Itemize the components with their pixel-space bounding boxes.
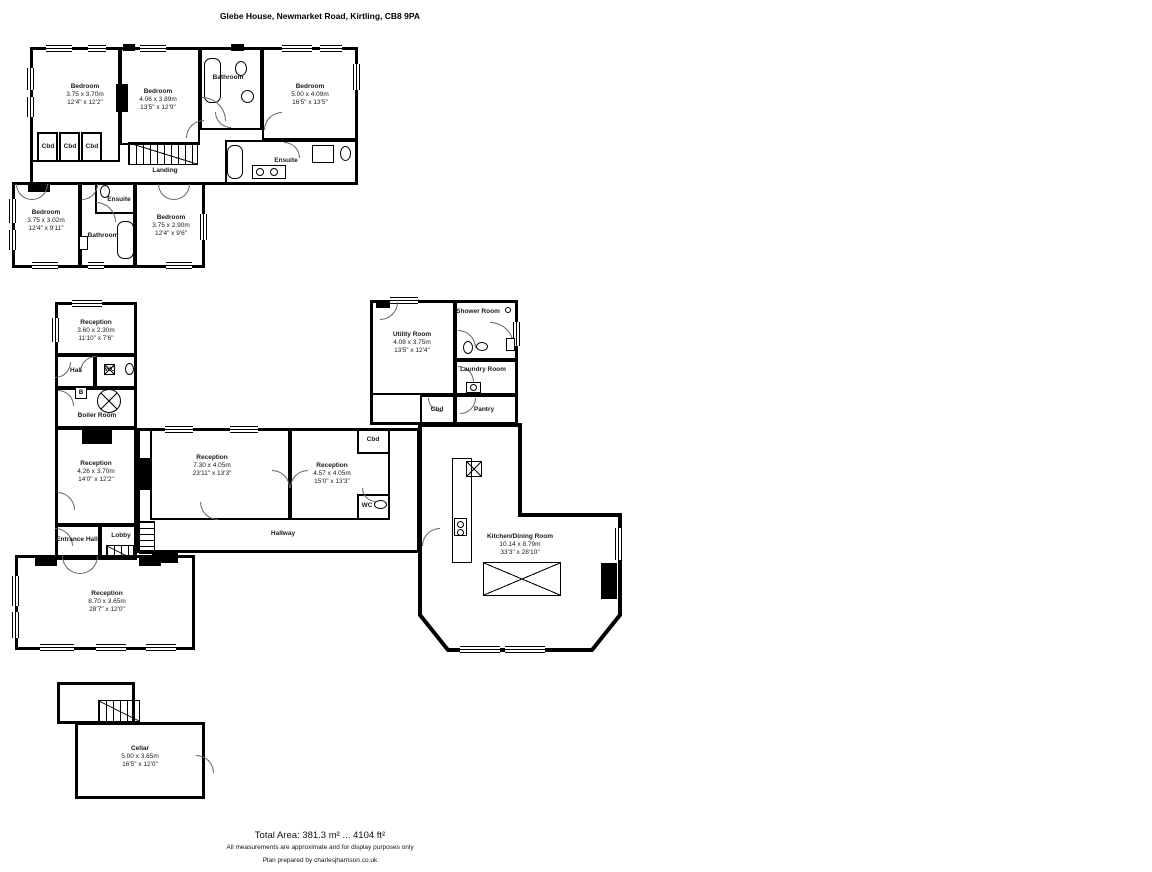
window [282,45,312,52]
plan-footer: Total Area: 381.3 m² ... 4104 ft² All me… [0,830,640,864]
room-name: Bedroom [291,83,329,91]
window [52,318,59,342]
room-label-reception-front: Reception 8.70 x 3.65m 28'7" x 12'0" [88,590,126,614]
prepared-by-text: Plan prepared by charlesjharrison.co.uk [0,857,640,864]
wall-segment [123,44,135,51]
toilet-icon [125,363,134,375]
room-dim-imperial: 23'11" x 13'3" [193,470,232,478]
window [88,262,104,269]
sink-icon [476,342,488,351]
wall-segment [152,551,178,563]
room-label-reception-small: Reception 3.60 x 2.30m 11'10" x 7'6" [77,319,115,343]
room-label-bedroom-2: Bedroom 4.06 x 3.89m 13'5" x 12'9" [139,88,177,112]
room-label-bedroom-3: Bedroom 5.00 x 4.09m 16'5" x 13'5" [291,83,329,107]
window [27,68,34,90]
room-name: Reception [77,460,115,468]
room-label-shower: Shower Room [456,308,500,316]
room-dim-imperial: 15'0" x 13'3" [313,478,351,486]
window [353,64,360,90]
window [27,97,34,117]
room-label-wc-1: WC [105,366,116,374]
room-dim-imperial: 16'5" x 13'5" [291,99,329,107]
boiler-b-box: B [75,387,87,399]
hob-icon [466,461,482,477]
plan-title: Glebe House, Newmarket Road, Kirtling, C… [0,11,640,21]
chimney-breast [137,458,152,490]
room-dim-metric: 4.57 x 4.05m [313,470,351,478]
room-dim-metric: 8.70 x 3.65m [88,598,126,606]
room-dim-metric: 4.06 x 3.89m [139,96,177,104]
room-dim-metric: 7.30 x 4.05m [193,462,232,470]
sink-icon [241,90,254,103]
room-dim-metric: 10.14 x 8.79m [487,541,553,549]
room-dim-imperial: 13'5" x 12'4" [393,347,431,355]
washer-drum-icon [470,384,477,391]
room-label-lobby: Lobby [111,532,131,540]
sink-icon [79,236,88,250]
window [615,528,622,560]
room-name: Reception [313,462,351,470]
wall-segment [231,44,244,51]
stairs-landing [128,142,198,165]
sink-bowl-icon [457,521,464,528]
shower-icon [312,145,334,163]
room-dim-imperial: 12'4" x 9'11" [27,225,65,233]
room-name: Bedroom [27,209,65,217]
room-dim-metric: 3.75 x 3.02m [27,217,65,225]
room-label-reception-mid: Reception 7.30 x 4.05m 23'11" x 13'3" [193,454,232,478]
room-label-pantry: Pantry [474,406,494,414]
room-label-landing: Landing [152,167,177,175]
label-cbd-1: Cbd [42,143,55,151]
room-label-bedroom-5: Bedroom 3.75 x 2.90m 12'4" x 9'6" [152,214,190,238]
room-label-hallway: Hallway [271,530,295,538]
room-label-boiler: Boiler Room [78,412,117,420]
room-label-ensuite-lower: Ensuite [107,196,130,204]
room-dim-imperial: 28'7" x 12'0" [88,606,126,614]
room-name: Utility Room [393,331,431,339]
disclaimer-text: All measurements are approximate and for… [0,844,640,851]
room-label-entrance-hall: Entrance Hall [56,536,98,544]
window [46,45,72,52]
floorplan-page: Glebe House, Newmarket Road, Kirtling, C… [0,0,1152,872]
room-name: Cellar [121,745,159,753]
sink-icon [506,338,515,351]
window [9,230,16,250]
room-label-reception-right: Reception 4.57 x 4.05m 15'0" x 13'3" [313,462,351,486]
window [166,262,192,269]
room-label-ensuite-top: Ensuite [274,157,297,165]
light-icon [505,307,511,313]
room-dim-imperial: 14'0" x 12'2" [77,476,115,484]
window [9,199,16,223]
sink-bowl-icon [457,529,464,536]
room-dim-metric: 4.26 x 3.70m [77,468,115,476]
bathtub-icon [117,221,134,259]
room-label-cellar: Cellar 5.00 x 3.65m 16'5" x 12'0" [121,745,159,769]
window [230,426,258,433]
room-label-laundry: Laundry Room [460,366,506,374]
room-dim-metric: 5.00 x 4.09m [291,91,329,99]
chimney-breast [116,84,128,112]
window [40,644,74,651]
stairs-to-first-floor [139,521,155,554]
room-label-bedroom-4: Bedroom 3.75 x 3.02m 12'4" x 9'11" [27,209,65,233]
stairs-cellar [98,700,140,722]
window [12,612,19,638]
room-dim-imperial: 12'4" x 9'6" [152,230,190,238]
room-label-bedroom-1: Bedroom 3.75 x 3.70m 12'4" x 12'2" [66,83,104,107]
window [505,646,545,653]
room-name: Reception [77,319,115,327]
chimney-breast [82,429,112,444]
room-dim-metric: 3.60 x 2.30m [77,327,115,335]
chimney-breast [35,556,57,566]
window [88,45,106,52]
boiler-icon [97,389,121,413]
room-dim-imperial: 13'5" x 12'9" [139,104,177,112]
room-dim-metric: 3.75 x 2.90m [152,222,190,230]
window [460,646,500,653]
room-label-hall: Hall [70,367,82,375]
room-dim-imperial: 33'3" x 28'10" [487,549,553,557]
room-dim-metric: 5.00 x 3.65m [121,753,159,761]
bathtub-icon [227,145,243,179]
room-label-reception-left: Reception 4.26 x 3.70m 14'0" x 12'2" [77,460,115,484]
window [320,45,342,52]
window [72,300,102,307]
room-dim-metric: 4.08 x 3.75m [393,339,431,347]
window [146,644,176,651]
room-name: Kitchen/Dining Room [487,533,553,541]
label-cbd-2: Cbd [64,143,77,151]
room-dim-metric: 3.75 x 3.70m [66,91,104,99]
window [140,45,166,52]
room-name: Reception [193,454,232,462]
room-name: Bedroom [152,214,190,222]
room-label-kitchen: Kitchen/Dining Room 10.14 x 8.79m 33'3" … [487,533,553,557]
sink-icon [256,168,264,176]
label-cbd-3: Cbd [86,143,99,151]
chimney-breast [601,563,617,599]
room-name: Reception [88,590,126,598]
window [12,576,19,606]
room-dim-imperial: 11'10" x 7'6" [77,335,115,343]
dining-table [483,562,561,596]
window [165,426,193,433]
room-label-bathroom-lower: Bathroom [88,232,119,240]
toilet-icon [340,146,351,161]
room-label-cbd-1: Cbd [367,436,380,444]
door-arc [196,755,214,773]
room-label-cbd-2: Cbd [431,406,444,414]
window [32,262,58,269]
room-dim-imperial: 12'4" x 12'2" [66,99,104,107]
room-label-wc-2: WC [362,502,373,510]
room-name: Bedroom [139,88,177,96]
room-name: Bedroom [66,83,104,91]
total-area-text: Total Area: 381.3 m² ... 4104 ft² [0,830,640,841]
window [200,214,207,240]
room-label-utility: Utility Room 4.08 x 3.75m 13'5" x 12'4" [393,331,431,355]
sink-icon [270,168,278,176]
stairs-lobby [106,545,134,560]
room-dim-imperial: 16'5" x 12'0" [121,761,159,769]
room-label-bathroom-top: Bathroom [213,74,244,82]
window [96,644,126,651]
